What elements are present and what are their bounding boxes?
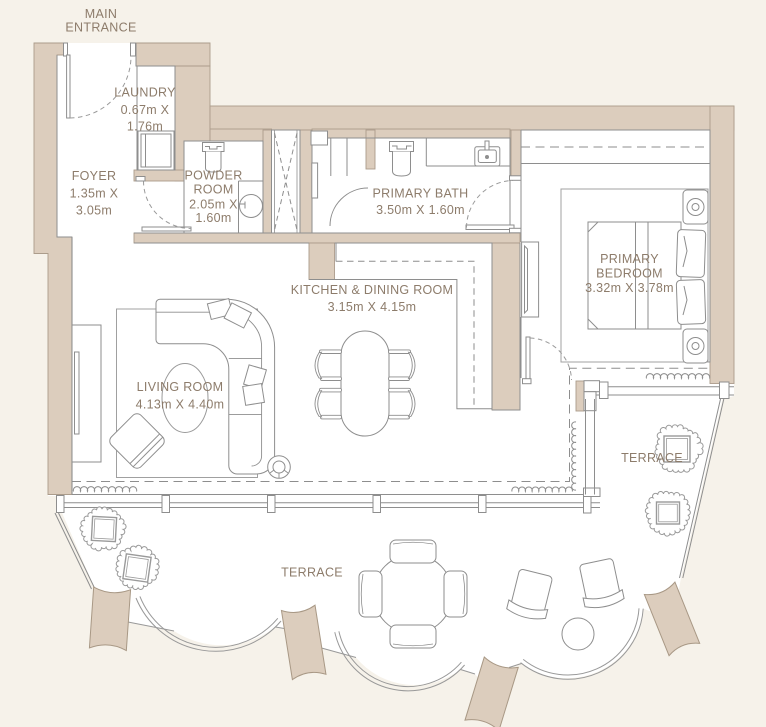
- svg-text:TERRACE: TERRACE: [281, 566, 343, 580]
- svg-text:1.60m: 1.60m: [195, 211, 231, 225]
- svg-text:KITCHEN & DINING ROOM: KITCHEN & DINING ROOM: [291, 283, 454, 297]
- svg-text:3.15m X 4.15m: 3.15m X 4.15m: [328, 300, 417, 314]
- svg-text:1.76m: 1.76m: [127, 120, 163, 134]
- svg-text:2.05m X: 2.05m X: [189, 198, 238, 212]
- svg-text:ROOM: ROOM: [193, 183, 233, 197]
- svg-text:ENTRANCE: ENTRANCE: [65, 21, 136, 35]
- svg-text:POWDER: POWDER: [184, 169, 242, 183]
- svg-text:1.35m X: 1.35m X: [70, 187, 119, 201]
- svg-text:PRIMARY: PRIMARY: [600, 252, 659, 266]
- svg-text:PRIMARY BATH: PRIMARY BATH: [373, 187, 469, 201]
- svg-text:BEDROOM: BEDROOM: [596, 267, 663, 281]
- svg-text:3.32m X 3.78m: 3.32m X 3.78m: [585, 281, 674, 295]
- svg-text:3.50m X 1.60m: 3.50m X 1.60m: [376, 203, 465, 217]
- svg-text:4.13m X 4.40m: 4.13m X 4.40m: [136, 398, 225, 412]
- svg-text:LIVING ROOM: LIVING ROOM: [137, 380, 224, 394]
- svg-text:LAUNDRY: LAUNDRY: [114, 86, 176, 100]
- svg-text:MAIN: MAIN: [85, 7, 117, 21]
- svg-text:0.67m X: 0.67m X: [121, 103, 170, 117]
- svg-text:FOYER: FOYER: [72, 169, 117, 183]
- svg-text:3.05m: 3.05m: [76, 204, 112, 218]
- svg-text:TERRACE: TERRACE: [621, 451, 683, 465]
